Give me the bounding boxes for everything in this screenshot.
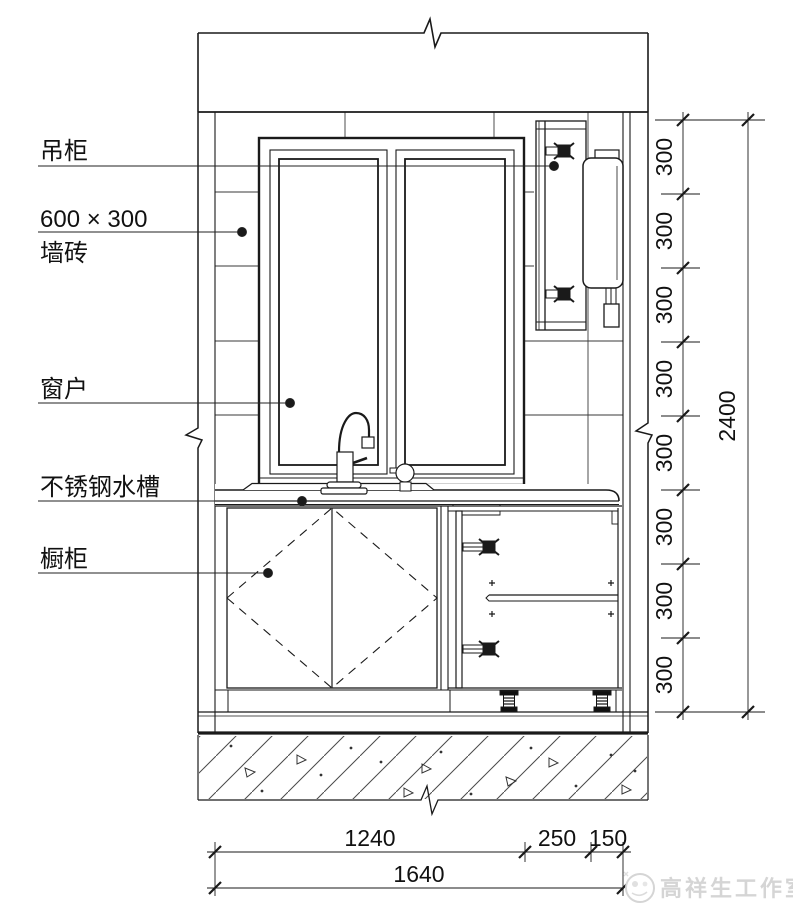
label-base-cabinet: 橱柜 xyxy=(40,546,88,573)
dim-300: 300 xyxy=(651,212,677,250)
window xyxy=(259,138,524,485)
base-cabinets xyxy=(215,506,622,712)
label-tile-material: 墙砖 xyxy=(40,240,88,267)
label-hanging-cabinet: 吊柜 xyxy=(40,138,88,165)
hanging-cabinet xyxy=(534,119,587,332)
leader-dot-base-cabinet xyxy=(264,569,273,578)
faucet-body xyxy=(337,452,353,482)
leader-dot-hanging-cabinet xyxy=(550,162,559,171)
dim-300: 300 xyxy=(651,286,677,324)
watermark-logo-icon xyxy=(626,874,654,902)
dim-2400: 2400 xyxy=(714,390,740,441)
faucet-nozzle xyxy=(362,437,374,448)
watermark-studio-name: 高祥生工作室 xyxy=(660,876,793,901)
dim-300: 300 xyxy=(651,434,677,472)
dim-300: 300 xyxy=(651,508,677,546)
dim-300: 300 xyxy=(651,360,677,398)
leader-dot-sink xyxy=(298,497,307,506)
dim-1240: 1240 xyxy=(344,825,395,851)
dim-150: 150 xyxy=(589,825,627,851)
heater-pipe-valve xyxy=(604,304,619,327)
soap-dispenser xyxy=(396,464,414,482)
watermark: 高祥生工作室 xyxy=(624,872,793,902)
dim-250: 250 xyxy=(538,825,576,851)
label-sink: 不锈钢水槽 xyxy=(40,474,160,501)
leader-dot-tile xyxy=(238,228,247,237)
kitchen-elevation-drawing: 吊柜 600 × 300 墙砖 窗户 不锈钢水槽 橱柜 xyxy=(0,0,793,924)
leader-dot-window xyxy=(286,399,295,408)
dim-300: 300 xyxy=(651,138,677,176)
label-tile-size: 600 × 300 xyxy=(40,206,147,233)
label-window: 窗户 xyxy=(40,376,88,403)
kitchen-elevation-page: 吊柜 600 × 300 墙砖 窗户 不锈钢水槽 橱柜 xyxy=(0,0,793,924)
dim-1640: 1640 xyxy=(393,861,444,887)
dim-300: 300 xyxy=(651,656,677,694)
dim-300: 300 xyxy=(651,582,677,620)
